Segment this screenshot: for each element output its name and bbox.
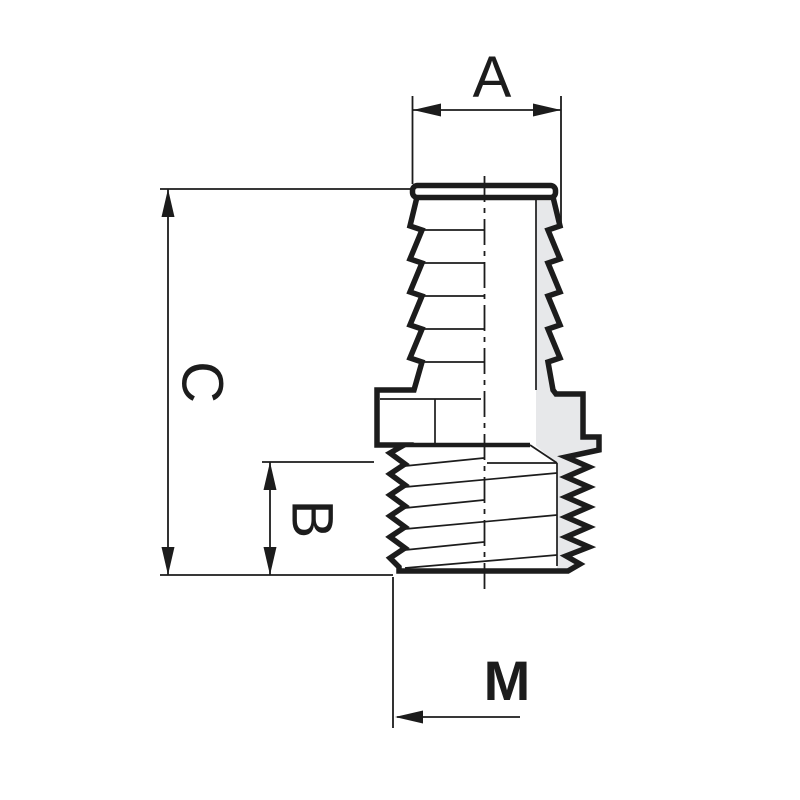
- dimension-label-a: A: [473, 45, 512, 110]
- drawing-canvas: A C B M: [0, 0, 800, 800]
- dimension-m: M: [393, 577, 530, 728]
- dimension-b: B: [262, 462, 374, 575]
- technical-drawing: A C B M: [0, 0, 800, 800]
- dimension-label-m: M: [484, 649, 531, 712]
- arrowhead-up: [162, 189, 175, 217]
- arrowhead-right: [533, 104, 561, 117]
- arrowhead-left: [395, 711, 423, 724]
- arrowhead-left: [413, 104, 441, 117]
- dimension-label-c: C: [170, 361, 235, 403]
- fitting: [375, 176, 599, 591]
- dimension-label-b: B: [280, 500, 345, 539]
- arrowhead-down: [264, 547, 277, 575]
- arrowhead-up: [264, 462, 277, 490]
- arrowhead-down: [162, 547, 175, 575]
